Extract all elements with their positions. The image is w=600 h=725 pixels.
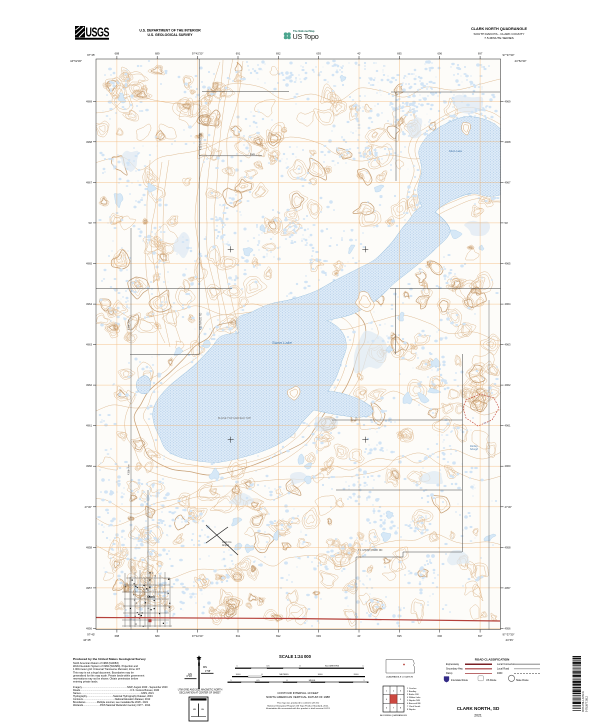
svg-text:4968: 4968 bbox=[86, 140, 92, 144]
svg-text:4956: 4956 bbox=[86, 626, 92, 630]
svg-text:40': 40' bbox=[357, 52, 361, 56]
svg-text:CLARK NORTH, SD: CLARK NORTH, SD bbox=[457, 706, 500, 711]
svg-text:4963: 4963 bbox=[86, 343, 92, 347]
svg-text:4957: 4957 bbox=[86, 586, 92, 590]
svg-text:Interstate Route: Interstate Route bbox=[451, 679, 469, 682]
svg-text:97°42'30": 97°42'30" bbox=[192, 634, 204, 638]
svg-text:entering private lands.: entering private lands. bbox=[73, 680, 98, 684]
svg-text:1 000-meter grid: Universal Tr: 1 000-meter grid: Universal Transverse M… bbox=[73, 667, 140, 671]
svg-text:695: 695 bbox=[397, 634, 402, 638]
svg-text:4 Willow Lake: 4 Willow Lake bbox=[407, 697, 421, 699]
svg-text:6 Bancroft NE: 6 Bancroft NE bbox=[407, 702, 421, 705]
svg-text:435th Ave: 435th Ave bbox=[128, 464, 131, 475]
svg-text:689: 689 bbox=[155, 634, 160, 638]
svg-text:4960: 4960 bbox=[505, 464, 511, 468]
svg-text:4957: 4957 bbox=[505, 586, 511, 590]
svg-text:A metadata file associated wit: A metadata file associated with this pro… bbox=[266, 707, 330, 710]
svg-text:696: 696 bbox=[437, 634, 442, 638]
svg-text:4958: 4958 bbox=[86, 545, 92, 549]
svg-text:435th Ave: 435th Ave bbox=[128, 319, 131, 330]
svg-text:US Route: US Route bbox=[486, 679, 497, 682]
svg-text:691: 691 bbox=[236, 634, 241, 638]
svg-text:433 RANGE RD: 433 RANGE RD bbox=[200, 132, 203, 150]
svg-text:692: 692 bbox=[276, 52, 281, 56]
svg-text:696: 696 bbox=[437, 52, 442, 56]
svg-text:Slough: Slough bbox=[470, 447, 479, 451]
svg-text:SOUTH DAKOTA - CLARK COUNTY: SOUTH DAKOTA - CLARK COUNTY bbox=[474, 32, 525, 36]
svg-text:9 781677 2612: 9 781677 2612 bbox=[586, 695, 589, 712]
svg-text:MN: MN bbox=[203, 666, 207, 669]
svg-text:4969: 4969 bbox=[505, 99, 511, 103]
svg-text:695: 695 bbox=[397, 52, 402, 56]
svg-text:2021: 2021 bbox=[474, 714, 482, 718]
svg-text:40': 40' bbox=[357, 634, 361, 638]
svg-text:ADJOINING QUADRANGLES: ADJOINING QUADRANGLES bbox=[380, 714, 407, 717]
svg-text:697: 697 bbox=[478, 634, 483, 638]
svg-text:SCALE 1:24 000: SCALE 1:24 000 bbox=[279, 654, 312, 659]
svg-text:GN: GN bbox=[188, 673, 192, 676]
svg-text:Cem: Cem bbox=[250, 153, 255, 156]
svg-text:693: 693 bbox=[316, 634, 321, 638]
svg-text:4WD: 4WD bbox=[497, 672, 503, 675]
svg-text:4961: 4961 bbox=[505, 424, 511, 428]
svg-text:1°58′: 1°58′ bbox=[205, 670, 211, 673]
svg-text:4961: 4961 bbox=[86, 424, 92, 428]
svg-text:4969: 4969 bbox=[86, 99, 92, 103]
svg-text:ROAD CLASSIFICATION: ROAD CLASSIFICATION bbox=[475, 658, 510, 662]
svg-text:This map was produced to confo: This map was produced to conform with th… bbox=[277, 702, 320, 705]
svg-text:44°52′30″: 44°52′30″ bbox=[70, 59, 82, 63]
svg-text:CLARK NORTH QUADRANGLE: CLARK NORTH QUADRANGLE bbox=[471, 27, 528, 31]
svg-text:5 Naples NW: 5 Naples NW bbox=[407, 700, 421, 702]
svg-text:DECLINATION AT CENTER OF SHEET: DECLINATION AT CENTER OF SHEET bbox=[179, 691, 221, 694]
svg-text:MN: MN bbox=[193, 709, 197, 711]
svg-text:Secondary Hwy: Secondary Hwy bbox=[446, 668, 464, 671]
svg-text:Mud Lake: Mud Lake bbox=[449, 149, 463, 153]
svg-text:Ramp: Ramp bbox=[446, 672, 453, 675]
svg-text:2000: 2000 bbox=[354, 674, 360, 676]
svg-text:USGS: USGS bbox=[86, 26, 110, 40]
svg-text:US Topo: US Topo bbox=[293, 32, 319, 41]
svg-text:1 Crocker: 1 Crocker bbox=[407, 687, 417, 690]
svg-text:Expressway: Expressway bbox=[446, 663, 460, 666]
svg-text:KILOMETERS: KILOMETERS bbox=[325, 666, 340, 668]
svg-text:97°45′: 97°45′ bbox=[87, 53, 95, 57]
svg-text:4965: 4965 bbox=[505, 262, 511, 266]
svg-text:44°45′: 44°45′ bbox=[83, 638, 91, 642]
svg-text:National Geospatial Program US: National Geospatial Program US Topo Prod… bbox=[267, 704, 329, 707]
svg-text:4956: 4956 bbox=[505, 626, 511, 630]
svg-text:4967: 4967 bbox=[86, 180, 92, 184]
svg-text:47'30": 47'30" bbox=[85, 505, 92, 509]
svg-text:Airport: Airport bbox=[222, 544, 229, 547]
svg-text:Clark: Clark bbox=[147, 595, 155, 599]
svg-text:1000: 1000 bbox=[236, 674, 242, 676]
svg-text:4964: 4964 bbox=[86, 302, 92, 306]
svg-text:50': 50' bbox=[88, 221, 92, 225]
svg-text:688: 688 bbox=[115, 52, 120, 56]
svg-text:97°45′: 97°45′ bbox=[87, 633, 95, 637]
svg-text:3 Butler SW: 3 Butler SW bbox=[407, 693, 420, 696]
svg-text:4962: 4962 bbox=[505, 383, 511, 387]
svg-text:Swan Lake: Swan Lake bbox=[272, 340, 293, 345]
svg-text:BLAINE TWP GARFIELD TWP: BLAINE TWP GARFIELD TWP bbox=[218, 417, 251, 420]
svg-text:689: 689 bbox=[155, 52, 160, 56]
svg-text:4963: 4963 bbox=[505, 343, 511, 347]
svg-text:METERS: METERS bbox=[279, 674, 289, 676]
svg-text:4962: 4962 bbox=[86, 383, 92, 387]
svg-text:Local Connector: Local Connector bbox=[497, 663, 515, 666]
svg-text:47'30": 47'30" bbox=[505, 505, 512, 509]
svg-text:U.S. DEPARTMENT OF THE INTERIO: U.S. DEPARTMENT OF THE INTERIOR bbox=[139, 29, 201, 33]
svg-text:4964: 4964 bbox=[505, 302, 511, 306]
svg-text:44°45′: 44°45′ bbox=[506, 638, 514, 642]
svg-text:2 Bradley: 2 Bradley bbox=[407, 690, 417, 693]
svg-text:97°37′30″: 97°37′30″ bbox=[503, 53, 515, 57]
svg-text:U.S. GEOLOGICAL SURVEY: U.S. GEOLOGICAL SURVEY bbox=[147, 33, 193, 37]
svg-text:50': 50' bbox=[505, 221, 509, 225]
svg-text:433 RANGE RD: 433 RANGE RD bbox=[200, 312, 203, 330]
svg-text:8 Naples: 8 Naples bbox=[407, 709, 417, 711]
svg-text:7 Clark South: 7 Clark South bbox=[407, 705, 421, 708]
svg-text:T 1 GHOST HAWK RD: T 1 GHOST HAWK RD bbox=[358, 549, 383, 552]
svg-text:Local Road: Local Road bbox=[497, 668, 510, 671]
svg-text:44°52′30″: 44°52′30″ bbox=[515, 59, 527, 63]
svg-text:NORTH AMERICAN VERTICAL DATUM: NORTH AMERICAN VERTICAL DATUM OF 1988 bbox=[266, 695, 330, 699]
svg-text:692: 692 bbox=[276, 634, 281, 638]
svg-text:4960: 4960 bbox=[86, 464, 92, 468]
svg-text:4965: 4965 bbox=[86, 262, 92, 266]
svg-text:4967: 4967 bbox=[505, 180, 511, 184]
svg-text:7.5-MINUTE SERIES: 7.5-MINUTE SERIES bbox=[484, 36, 513, 40]
svg-text:697: 697 bbox=[478, 52, 483, 56]
svg-text:688: 688 bbox=[115, 634, 120, 638]
svg-text:97°37′30″: 97°37′30″ bbox=[503, 633, 515, 637]
svg-text:QUADRANGLE LOCATION: QUADRANGLE LOCATION bbox=[386, 676, 413, 679]
svg-text:4968: 4968 bbox=[505, 140, 511, 144]
svg-text:4958: 4958 bbox=[505, 545, 511, 549]
svg-text:1000: 1000 bbox=[318, 674, 324, 676]
svg-text:UTM GRID AND 2021 MAGNETIC NOR: UTM GRID AND 2021 MAGNETIC NORTH bbox=[178, 689, 223, 692]
svg-text:Produced by the United States: Produced by the United States Geological… bbox=[73, 657, 146, 661]
svg-text:Wetlands......................: Wetlands.........................FWS Nat… bbox=[73, 704, 151, 707]
svg-text:97°42'30": 97°42'30" bbox=[192, 52, 204, 56]
svg-text:State Route: State Route bbox=[516, 679, 529, 682]
svg-text:691: 691 bbox=[236, 52, 241, 56]
svg-text:693: 693 bbox=[316, 52, 321, 56]
